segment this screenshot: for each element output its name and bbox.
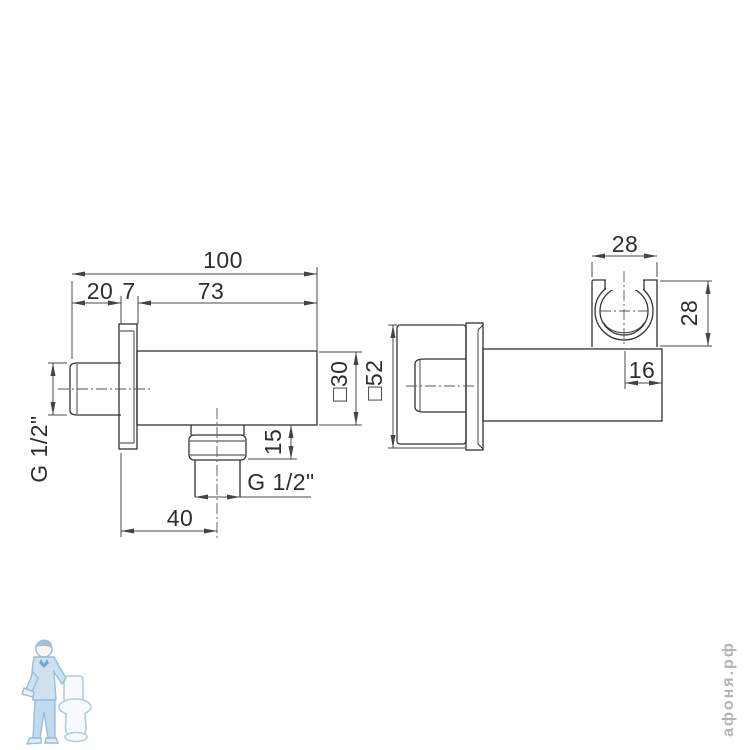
dim-holder-width: 28 xyxy=(612,231,639,257)
side-wall-plate xyxy=(466,323,483,450)
dim-outlet-thread: G 1/2" xyxy=(247,469,314,495)
side-view xyxy=(397,271,662,450)
front-outlet xyxy=(189,425,246,497)
side-rosette xyxy=(397,325,466,444)
technical-drawing: 100 20 7 73 G 1/2" □30 15 G 1/2" 40 xyxy=(0,0,750,750)
dim-plate-thickness: 7 xyxy=(122,278,135,304)
front-dimension-labels: 100 20 7 73 G 1/2" □30 15 G 1/2" 40 xyxy=(26,247,352,531)
dim-body-square: □30 xyxy=(326,361,352,402)
watermark-site-text: афоня.рф xyxy=(720,641,737,737)
side-inlet-stub xyxy=(415,359,466,412)
side-holder-fork xyxy=(592,274,657,347)
watermark-toilet xyxy=(59,676,91,742)
dim-overall-width: 100 xyxy=(203,247,243,273)
side-dimensions xyxy=(388,256,712,448)
dim-body-length: 73 xyxy=(198,278,225,304)
dim-stub-length: 20 xyxy=(87,278,114,304)
front-dimensions xyxy=(48,267,362,537)
front-wall-plate xyxy=(119,324,137,449)
dim-outlet-drop: 15 xyxy=(260,429,286,456)
dim-holder-end-offset: 16 xyxy=(629,357,656,383)
watermark-plumber xyxy=(22,640,66,744)
dim-inlet-thread: G 1/2" xyxy=(26,415,52,482)
dim-plate-square: □52 xyxy=(361,360,387,401)
dim-holder-height: 28 xyxy=(676,300,702,327)
watermark-plumber-illustration xyxy=(22,640,91,744)
front-body xyxy=(137,351,317,425)
dim-outlet-offset: 40 xyxy=(167,505,194,531)
drawing-page: 100 20 7 73 G 1/2" □30 15 G 1/2" 40 xyxy=(0,0,750,750)
